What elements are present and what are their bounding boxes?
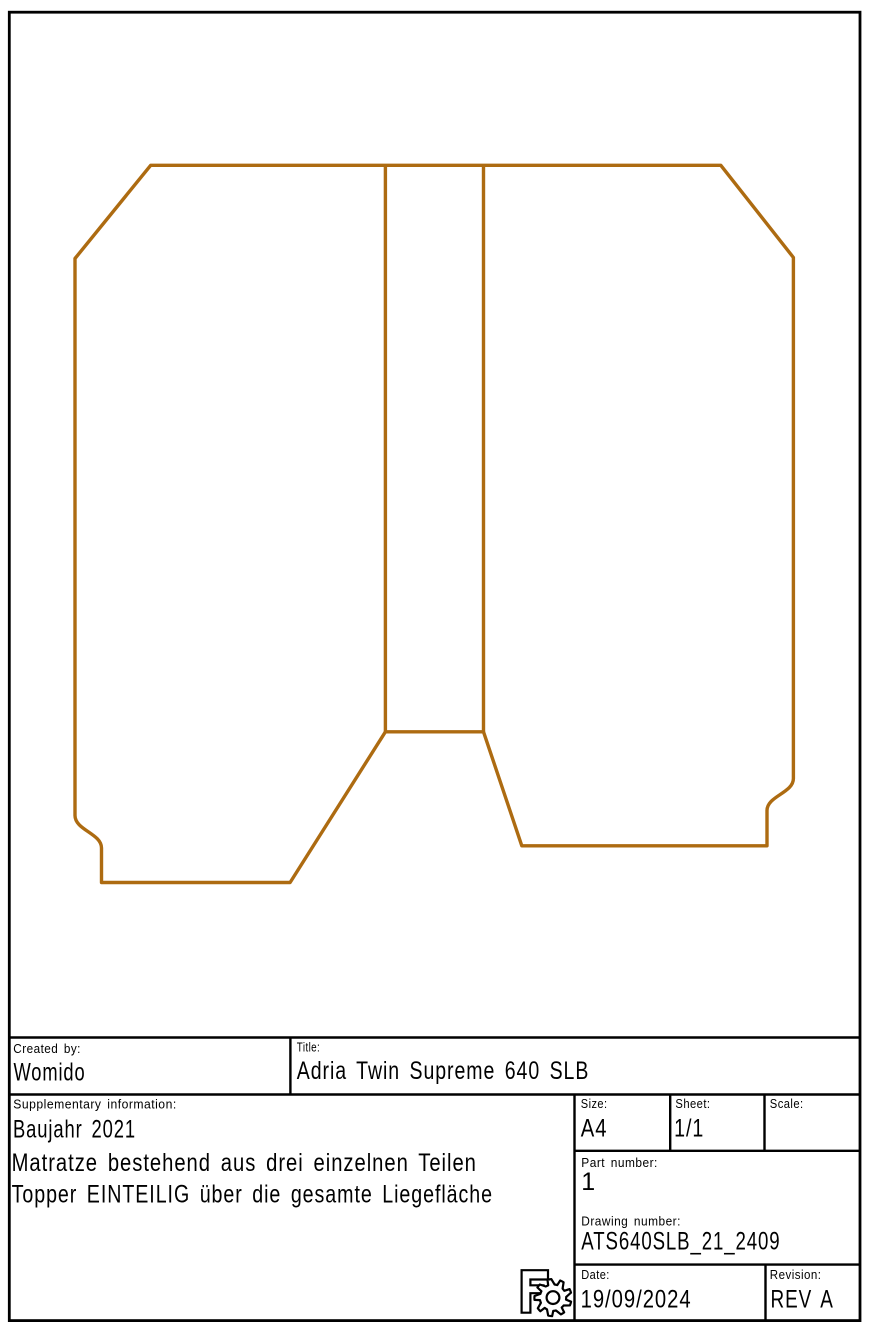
svg-text:Scale:: Scale: <box>770 1097 804 1111</box>
svg-text:Date:: Date: <box>581 1268 610 1282</box>
svg-text:REV A: REV A <box>771 1285 834 1313</box>
svg-text:Size:: Size: <box>581 1097 608 1111</box>
svg-text:Supplementary information:: Supplementary information: <box>13 1097 176 1111</box>
svg-text:19/09/2024: 19/09/2024 <box>581 1285 692 1313</box>
svg-text:Matratze bestehend aus drei ei: Matratze bestehend aus drei einzelnen Te… <box>12 1149 477 1177</box>
svg-text:Sheet:: Sheet: <box>675 1097 710 1111</box>
svg-text:Adria Twin Supreme 640 SLB: Adria Twin Supreme 640 SLB <box>297 1057 590 1085</box>
svg-text:ATS640SLB_21_2409: ATS640SLB_21_2409 <box>581 1228 780 1256</box>
svg-text:Drawing number:: Drawing number: <box>581 1215 681 1229</box>
svg-text:1/1: 1/1 <box>674 1114 704 1142</box>
svg-text:Revision:: Revision: <box>770 1268 822 1282</box>
svg-text:Womido: Womido <box>14 1059 86 1087</box>
svg-text:1: 1 <box>581 1168 596 1196</box>
svg-text:Topper EINTEILIG über die gesa: Topper EINTEILIG über die gesamte Liegef… <box>12 1181 493 1209</box>
svg-text:Title:: Title: <box>297 1040 320 1054</box>
svg-text:Baujahr 2021: Baujahr 2021 <box>13 1116 136 1144</box>
svg-text:A4: A4 <box>581 1114 608 1142</box>
svg-text:Created by:: Created by: <box>13 1042 81 1056</box>
